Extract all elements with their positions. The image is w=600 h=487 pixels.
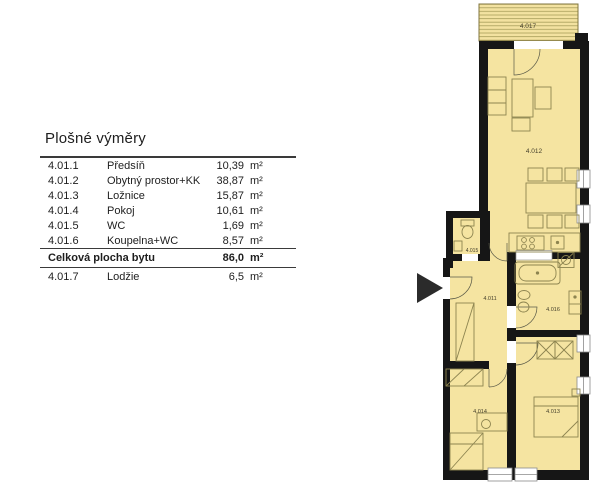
row-code: 4.01.5 [40,220,107,232]
row-unit: m² [244,190,288,202]
row-unit: m² [244,205,288,217]
window [515,468,537,481]
bathtub-drain [536,272,538,274]
room-label-hall: 4.011 [483,296,496,302]
row-unit: m² [244,220,288,232]
row-code: 4.01.7 [40,271,107,283]
table-row: 4.01.1 Předsíň 10,39 m² [40,158,296,173]
room-label-bedroom: 4.013 [546,409,560,415]
window [488,468,512,481]
row-code: 4.01.6 [40,235,107,247]
row-code: 4.01.3 [40,190,107,202]
row-unit: m² [244,160,288,172]
row-value: 10,39 [207,160,244,172]
area-table: Plošné výměry 4.01.1 Předsíň 10,39 m² 4.… [40,130,296,285]
table-row: 4.01.6 Koupelna+WC 8,57 m² [40,233,296,248]
room-label-bath: 4.016 [546,307,560,313]
row-code: 4.01.4 [40,205,107,217]
row-name: WC [107,220,207,232]
entrance-arrow [417,273,443,303]
row-name: Obytný prostor+KK [107,175,207,187]
row-unit: m² [244,271,288,283]
room-label-loggia: 4.017 [520,23,537,30]
area-table-body: 4.01.1 Předsíň 10,39 m² 4.01.2 Obytný pr… [40,156,296,285]
row-unit: m² [244,175,288,187]
table-row: 4.01.3 Ložnice 15,87 m² [40,188,296,203]
row-unit: m² [244,235,288,247]
row-code: 4.01.2 [40,175,107,187]
row-name: Koupelna+WC [107,235,207,247]
row-value: 8,57 [207,235,244,247]
room-label-wc: 4.015 [466,248,479,254]
sink-drain [556,241,558,243]
row-name: Pokoj [107,205,207,217]
table-total-row: Celková plocha bytu 86,0 m² [40,248,296,268]
row-value: 15,87 [207,190,244,202]
row-code: 4.01.1 [40,160,107,172]
row-name: Ložnice [107,190,207,202]
table-row: 4.01.5 WC 1,69 m² [40,218,296,233]
room-label-living: 4.012 [526,148,543,155]
row-name: Předsíň [107,160,207,172]
row-value: 6,5 [207,271,244,283]
room-label-room4: 4.014 [473,409,487,415]
table-row: 4.01.4 Pokoj 10,61 m² [40,203,296,218]
row-value: 38,87 [207,175,244,187]
loggia: 4.017 [479,4,578,41]
window [577,377,590,394]
row-name: Lodžie [107,271,207,283]
total-label: Celková plocha bytu [40,252,207,264]
total-value: 86,0 [207,252,244,264]
floor-plan: 4.017 [410,0,600,487]
row-value: 10,61 [207,205,244,217]
table-row-loggia: 4.01.7 Lodžie 6,5 m² [40,268,296,285]
row-value: 1,69 [207,220,244,232]
total-unit: m² [244,252,288,264]
table-row: 4.01.2 Obytný prostor+KK 38,87 m² [40,173,296,188]
area-table-title: Plošné výměry [45,130,296,147]
window [577,335,590,352]
